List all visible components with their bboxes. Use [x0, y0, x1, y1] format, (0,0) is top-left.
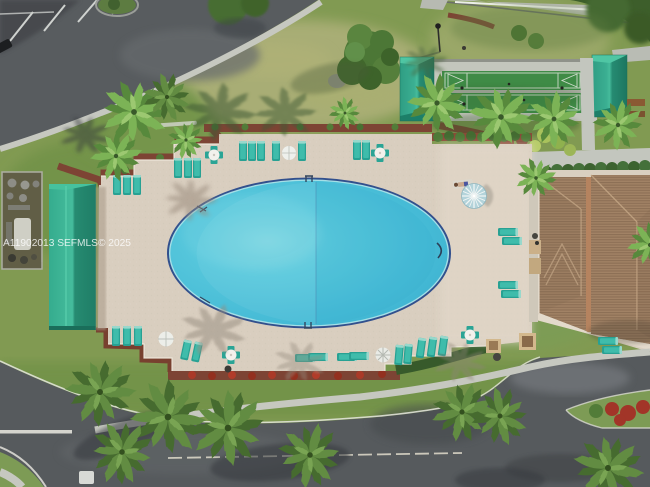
svg-text:A11902013 SEFMLS© 2025: A11902013 SEFMLS© 2025 [3, 238, 131, 249]
